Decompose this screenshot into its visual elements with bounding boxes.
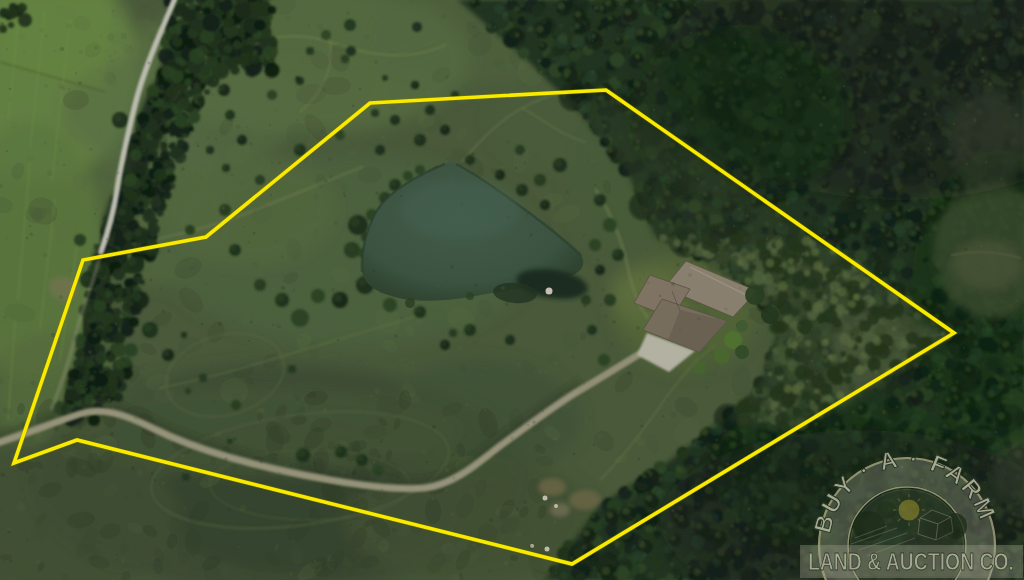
svg-text:LAND & AUCTION CO.: LAND & AUCTION CO. <box>808 548 1014 575</box>
